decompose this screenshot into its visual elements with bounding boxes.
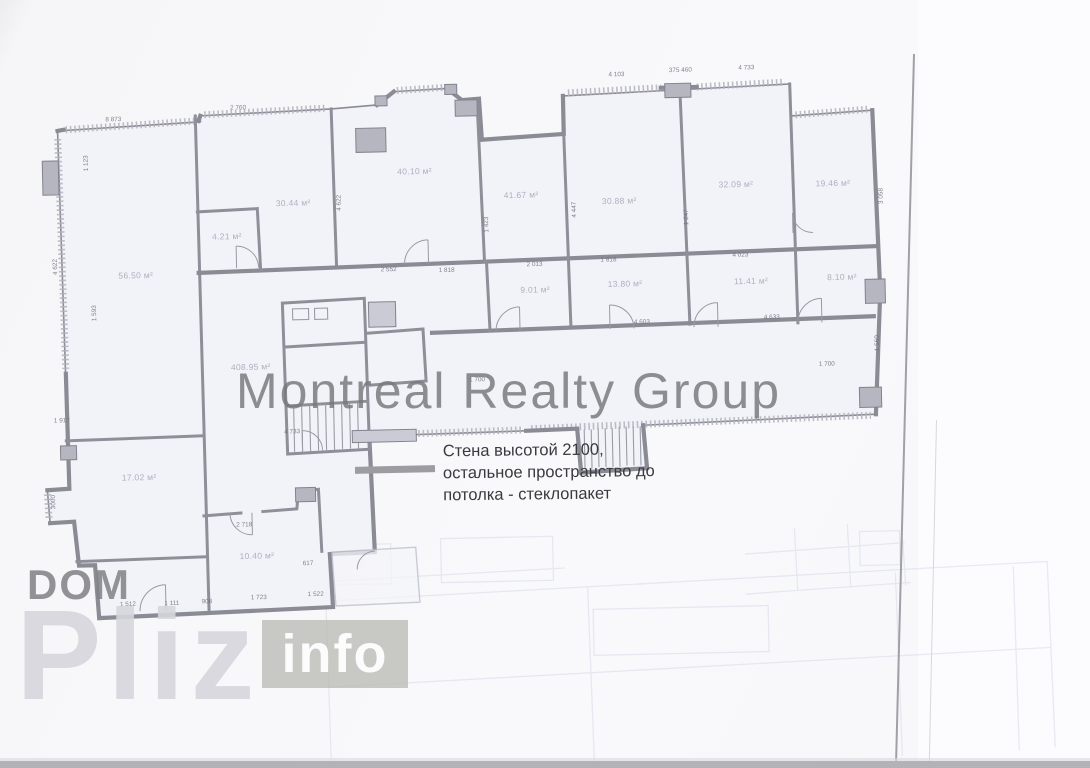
watermark-pliz: Pliz: [16, 592, 261, 720]
annotation-line: потолка - стеклопакет: [443, 482, 693, 506]
bottom-scan-strip: [0, 761, 1090, 768]
annotation-line: Стена высотой 2100,: [443, 439, 693, 463]
annotation: Стена высотой 2100, остальное пространст…: [443, 439, 694, 507]
annotation-line: остальное пространство до: [443, 460, 693, 484]
watermark-info-label: info: [282, 627, 389, 681]
watermark-info-badge: info: [262, 620, 408, 688]
scanned-page: 56.50 м²30.44 м²4.21 м²40.10 м²41.67 м²3…: [0, 0, 1090, 768]
faded-inner-room: [332, 547, 420, 606]
watermark-center: Montreal Realty Group: [236, 366, 781, 416]
